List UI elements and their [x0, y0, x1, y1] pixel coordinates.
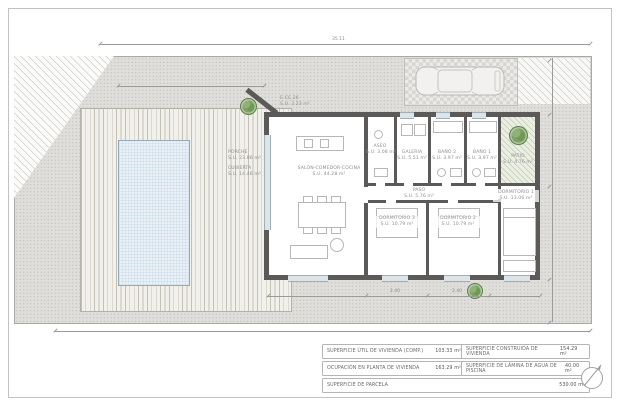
washer: [401, 124, 413, 136]
door-bano2: [442, 183, 451, 186]
partition-salon-lower: [364, 203, 368, 275]
summary-row-util: SUPERFICIE ÚTIL DE VIVIENDA (COMP.) 103.…: [322, 344, 466, 359]
summary-label: OCUPACIÓN EN PLANTA DE VIVIENDA: [327, 366, 419, 371]
room-label-salon: SALÓN-COMEDOR-COCINA S.U. 44.28 m²: [294, 166, 364, 178]
summary-row-piscina: SUPERFICIE DE LÁMINA DE AGUA DE PISCINA …: [461, 361, 590, 376]
dining-chair: [303, 196, 313, 203]
summary-label: SUPERFICIE ÚTIL DE VIVIENDA (COMP.): [327, 349, 423, 354]
room-label-paso: PASOS.U. 5.76 m²: [404, 188, 434, 200]
room-label-bano1: BAÑO 1S.U. 3.97 m²: [466, 150, 498, 162]
summary-row-ocupacion: OCUPACIÓN EN PLANTA DE VIVIENDA 163.29 m…: [322, 361, 466, 376]
window-dorm2: [444, 275, 470, 282]
summary-label: SUPERFICIE CONSTRUIDA DE VIVIENDA: [466, 347, 560, 357]
dim-label-overall: 35.11: [332, 37, 345, 42]
summary-value: 103.33 m²: [435, 349, 461, 354]
tree-icon: [509, 126, 528, 145]
toilet: [472, 168, 481, 177]
rug: [330, 238, 344, 252]
partition-dorm3-dorm2: [426, 203, 429, 275]
room-label-dorm3: DORMITORIO 3S.U. 10.79 m²: [372, 216, 422, 228]
dining-chair: [303, 227, 313, 234]
partition-bano1-patio: [498, 117, 501, 183]
room-label-bano2: BAÑO 2S.U. 3.97 m²: [431, 150, 463, 162]
door-aseo: [376, 183, 385, 186]
tree-icon: [240, 98, 257, 115]
window-dorm1: [504, 275, 530, 282]
dining-table: [298, 202, 346, 228]
room-label-cubierta: CUBIERTAS.U. 14.46 m²: [228, 166, 268, 178]
dim-line-bottom-overall: [55, 331, 590, 332]
swimming-pool: [118, 140, 190, 286]
dining-chair: [331, 196, 341, 203]
dim-line-bottom-chain: [268, 296, 540, 297]
window-bano2: [436, 112, 450, 119]
dim-label-dorm2: 2.40: [452, 289, 462, 294]
room-label-entrance: E.CC.26S.U. 3.23 m²: [280, 96, 320, 108]
dim-line-deck: [118, 86, 264, 87]
room-label-dorm2: DORMITORIO 2S.U. 10.79 m²: [433, 216, 483, 228]
room-label-patio: PATIOS.U. 4.76 m²: [503, 154, 533, 166]
front-yard-paving: [518, 58, 590, 104]
bathtub: [469, 121, 497, 133]
bed-pillow: [503, 208, 536, 218]
car-top-view-icon: [412, 62, 508, 100]
room-area: S.U. 44.28 m²: [294, 172, 364, 178]
summary-row-construida: SUPERFICIE CONSTRUIDA DE VIVIENDA 154.29…: [461, 344, 590, 359]
dining-chair: [317, 196, 327, 203]
dim-line-top: [100, 44, 590, 45]
kitchen-sink: [304, 139, 313, 148]
washbasin: [374, 168, 388, 177]
sofa: [290, 245, 328, 259]
door-galeria: [404, 183, 413, 186]
room-label-aseo: ASEOS.U. 3.08 m²: [366, 144, 394, 156]
kitchen-hob: [320, 139, 329, 148]
toilet: [374, 130, 383, 139]
room-label-porche: PORCHES.U. 23.86 m²: [228, 150, 268, 162]
dining-chair: [331, 227, 341, 234]
summary-value: 154.29 m²: [560, 347, 585, 357]
door-dorm2: [448, 200, 458, 203]
door-dorm3: [386, 200, 396, 203]
bathtub: [433, 121, 463, 133]
room-label-galeria: GALERIAS.U. 5.51 m²: [396, 150, 428, 162]
window-dorm3: [382, 275, 408, 282]
summary-label: SUPERFICIE DE PARCELA: [327, 383, 388, 388]
window-salon-south: [288, 275, 328, 282]
north-arrow-icon: [574, 358, 610, 394]
dining-chair: [317, 227, 327, 234]
door-bano1: [476, 183, 485, 186]
room-label-dorm1: DORMITORIO 1S.U. 13.06 m²: [493, 190, 539, 202]
window-galeria: [400, 112, 414, 119]
summary-value: 163.29 m²: [435, 366, 461, 371]
wardrobe-dorm1: [503, 260, 536, 272]
dim-line-right: [552, 58, 553, 322]
dryer: [414, 124, 426, 136]
washbasin: [484, 168, 496, 177]
dim-label-dorm3: 2.40: [390, 289, 400, 294]
partition-bathrow-bottom: [368, 183, 535, 186]
summary-row-parcela: SUPERFICIE DE PARCELA 530.00 m²: [322, 378, 590, 393]
window-bano1: [472, 112, 486, 119]
plan-sheet: SALÓN-COMEDOR-COCINA S.U. 44.28 m² ASEOS…: [0, 0, 620, 406]
toilet: [437, 168, 446, 177]
washbasin: [450, 168, 462, 177]
summary-label: SUPERFICIE DE LÁMINA DE AGUA DE PISCINA: [466, 364, 565, 374]
